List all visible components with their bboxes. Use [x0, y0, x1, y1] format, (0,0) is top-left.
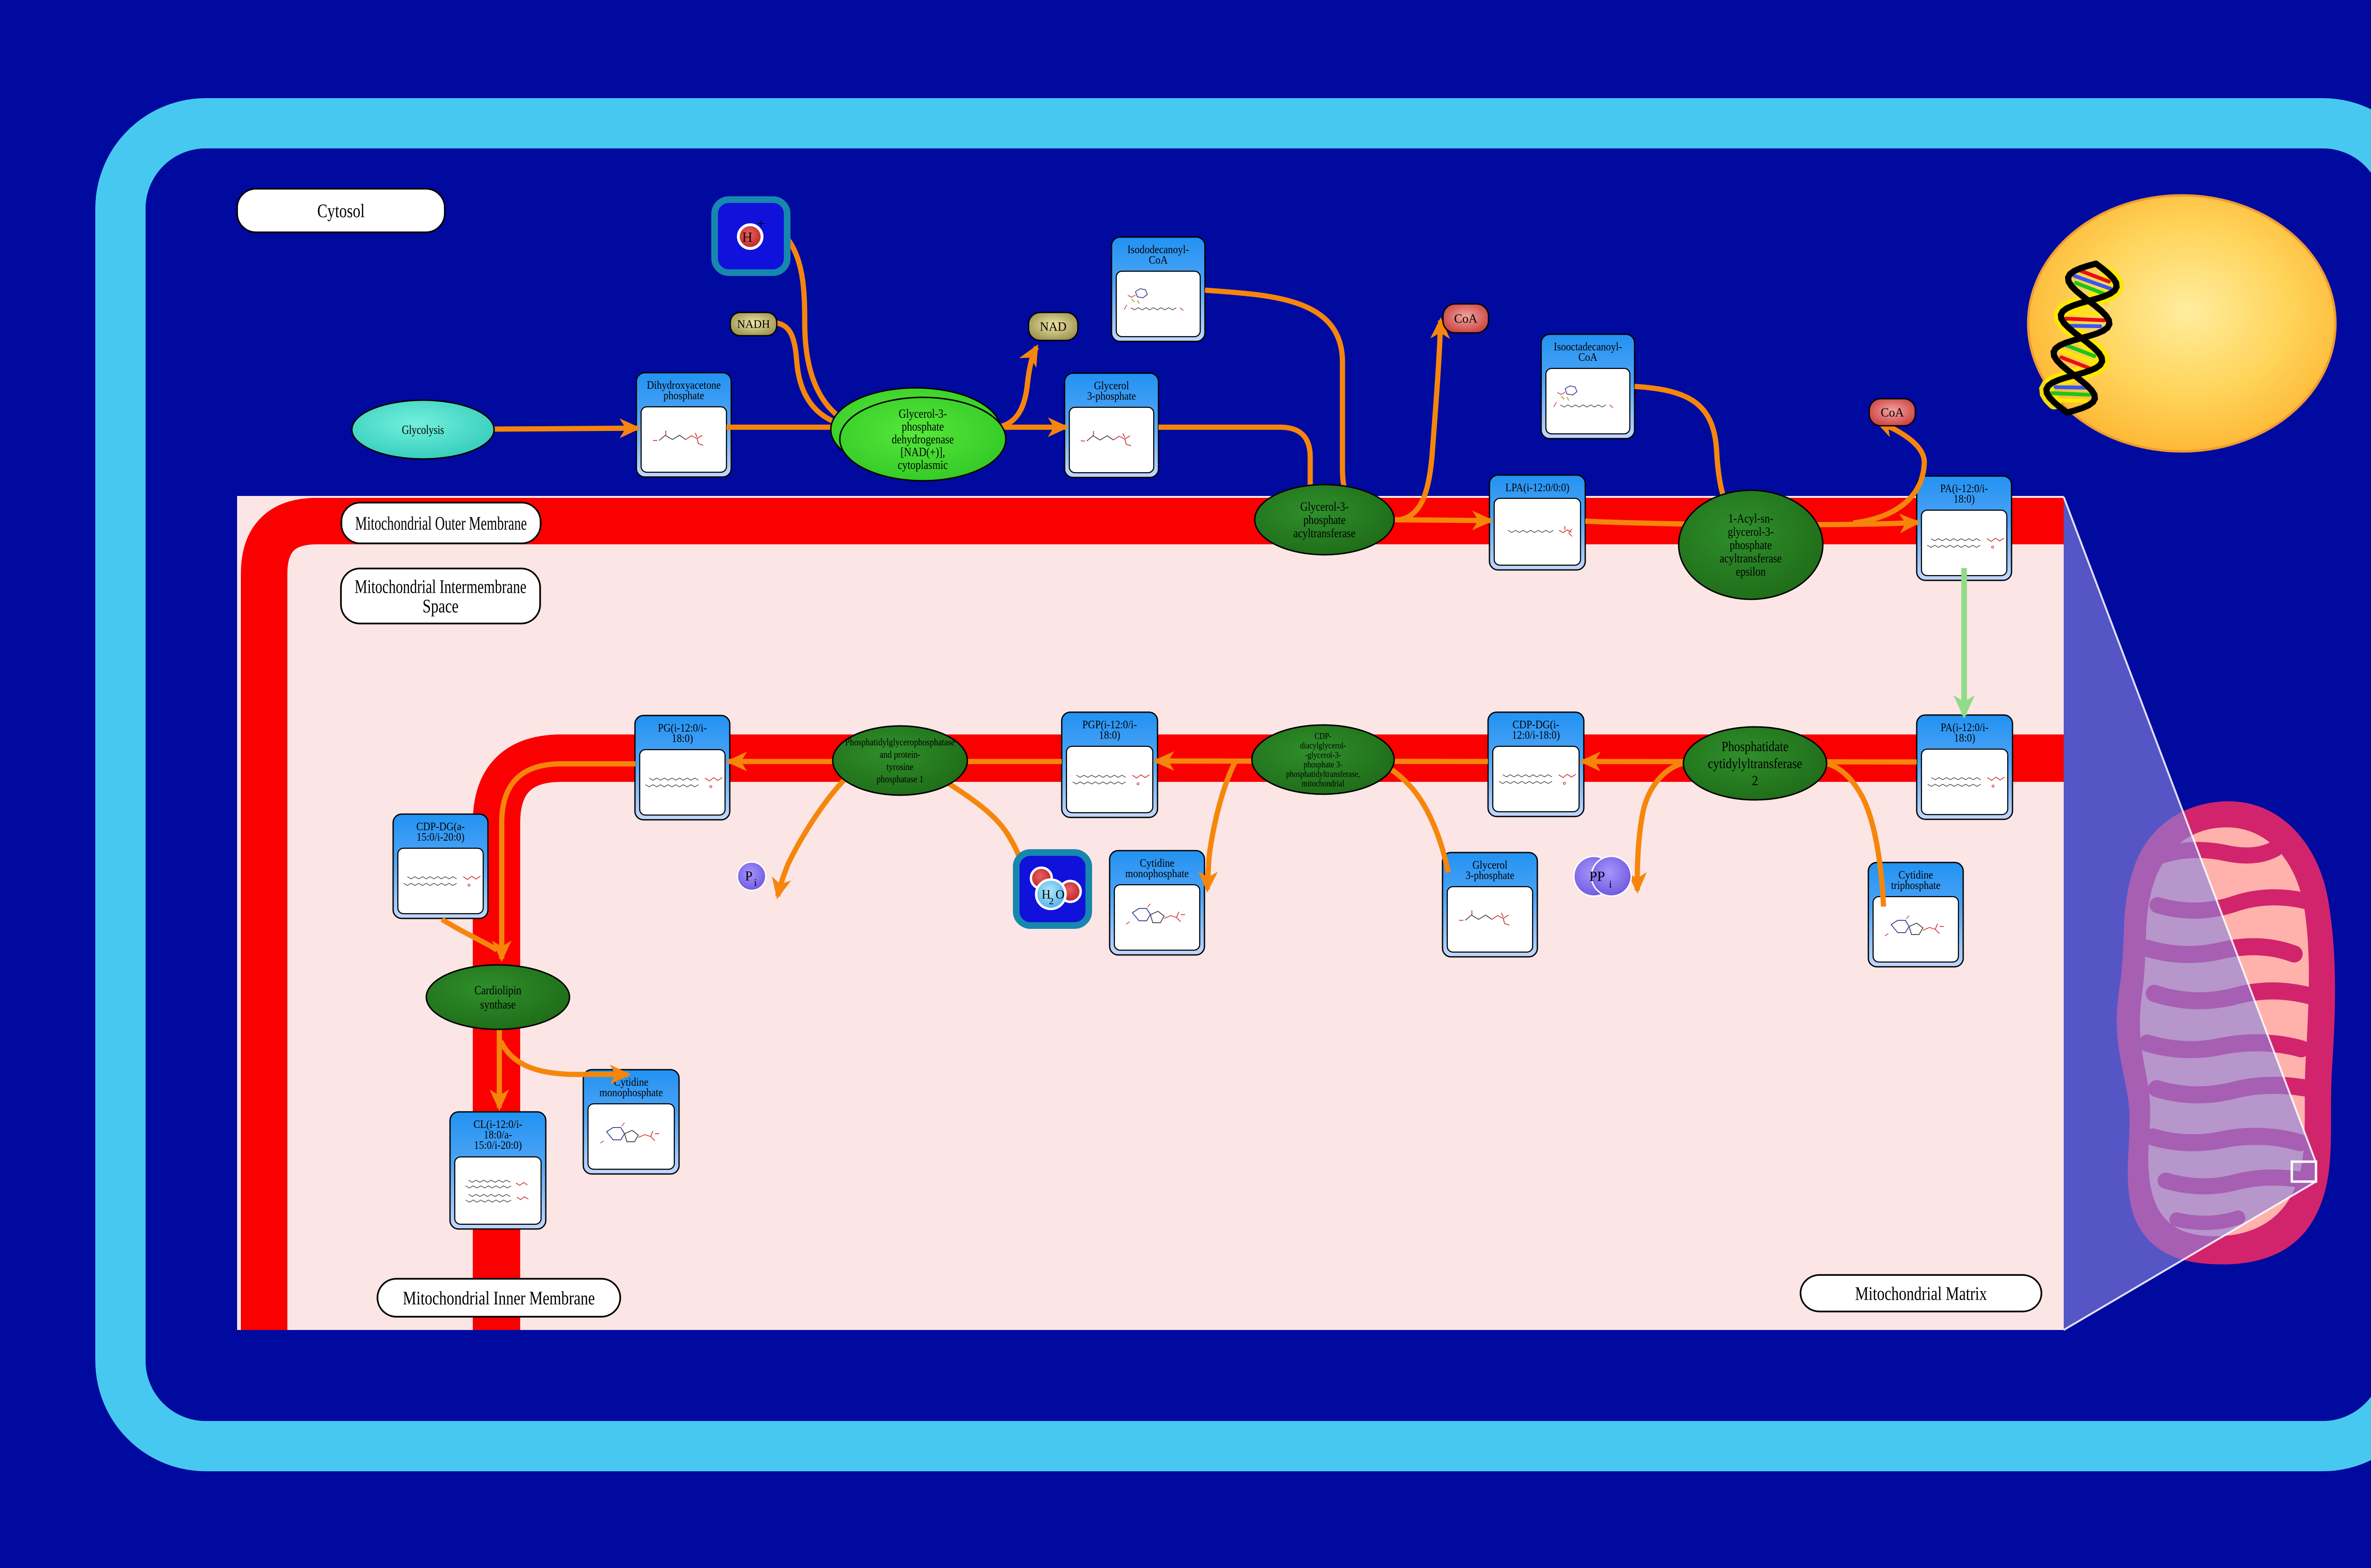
svg-text:+: +: [757, 216, 765, 231]
svg-text:Mitochondrial Inner Membrane: Mitochondrial Inner Membrane: [403, 1287, 595, 1309]
svg-text:Cardiolipinsynthase: Cardiolipinsynthase: [475, 983, 522, 1011]
svg-text:CoA: CoA: [1454, 312, 1477, 325]
svg-text:O: O: [1056, 888, 1065, 901]
svg-text:Glycerol3-phosphate: Glycerol3-phosphate: [1466, 859, 1515, 882]
svg-text:NAD: NAD: [1040, 320, 1066, 333]
svg-text:CDP-DG(i-12:0/i-18:0): CDP-DG(i-12:0/i-18:0): [1512, 719, 1560, 742]
svg-text:NADH: NADH: [737, 319, 770, 331]
svg-text:Cytidinetriphosphate: Cytidinetriphosphate: [1891, 869, 1940, 892]
svg-text:Mitochondrial Matrix: Mitochondrial Matrix: [1855, 1283, 1987, 1304]
svg-text:H: H: [742, 229, 753, 245]
svg-text:Glycolysis: Glycolysis: [402, 423, 444, 437]
svg-text:Cytosol: Cytosol: [317, 200, 365, 221]
svg-text:LPA(i-12:0/0:0): LPA(i-12:0/0:0): [1506, 482, 1570, 494]
svg-text:PP: PP: [1589, 869, 1605, 884]
svg-text:Glycerol3-phosphate: Glycerol3-phosphate: [1087, 380, 1136, 403]
svg-text:Mitochondrial Outer Membrane: Mitochondrial Outer Membrane: [355, 513, 527, 534]
svg-text:P: P: [745, 869, 753, 884]
svg-text:i: i: [1609, 878, 1612, 890]
svg-text:Glycerol-3-phosphatedehydrogen: Glycerol-3-phosphatedehydrogenase[NAD(+)…: [892, 407, 954, 472]
svg-text:2: 2: [1049, 896, 1054, 907]
svg-text:CoA: CoA: [1881, 405, 1904, 419]
svg-text:i: i: [754, 877, 757, 888]
svg-text:CDP-DG(a-15:0/i-20:0): CDP-DG(a-15:0/i-20:0): [416, 821, 465, 844]
